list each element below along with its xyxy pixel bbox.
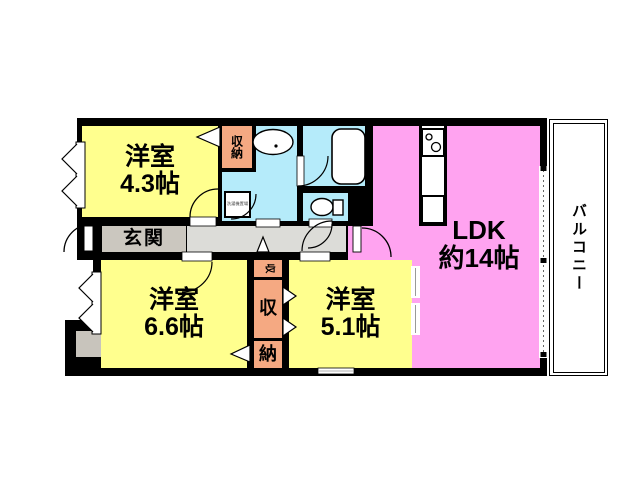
- room-6-6-name: 洋室: [144, 287, 204, 314]
- room-5-1-name: 洋室: [321, 287, 381, 314]
- room-4-3-label: 洋室 4.3帖: [90, 135, 210, 207]
- balcony-label: バルコニー: [568, 203, 589, 293]
- pillar-core: [76, 331, 102, 357]
- entrance: 玄関: [102, 226, 186, 252]
- room-4-3-name: 洋室: [120, 144, 180, 171]
- bathroom: [303, 126, 365, 186]
- balcony: バルコニー: [549, 119, 608, 376]
- closet-b-bottom: 納: [254, 341, 282, 368]
- balcony-inner-rail: バルコニー: [553, 123, 605, 373]
- room-5-1-size: 5.1帖: [321, 314, 381, 341]
- kitchen-counter: [419, 126, 447, 226]
- hallway: [187, 226, 346, 252]
- entrance-label: 玄関: [123, 229, 165, 250]
- closet-b: 収 収 納: [254, 260, 282, 368]
- room-4-3-size: 4.3帖: [120, 171, 180, 198]
- room-6-6-label: 洋室 6.6帖: [104, 278, 244, 350]
- toilet-room: [303, 193, 348, 221]
- closet-b-top: 収: [254, 260, 282, 277]
- closet-b-mid: 収: [254, 280, 282, 338]
- room-ldk-name: LDK: [439, 216, 520, 244]
- closet-b-mid-label: 収: [259, 299, 277, 318]
- washing-machine-pan: 洗濯機置場: [224, 191, 251, 218]
- closet-a: 収納: [222, 126, 256, 172]
- room-ldk-label: LDK 約14帖: [418, 212, 540, 276]
- room-5-1-label: 洋室 5.1帖: [292, 278, 409, 350]
- washing-machine-pan-label: 洗濯機置場: [227, 202, 248, 206]
- room-6-6-size: 6.6帖: [144, 314, 204, 341]
- closet-b-bottom-label: 納: [259, 345, 277, 364]
- closet-b-top-label: 収: [263, 263, 274, 273]
- room-ldk-size: 約14帖: [439, 244, 520, 272]
- closet-a-label: 収納: [229, 135, 246, 159]
- floor-plan: 収納 玄関 収 収 納 洗濯機置場 バルコニー: [0, 0, 640, 480]
